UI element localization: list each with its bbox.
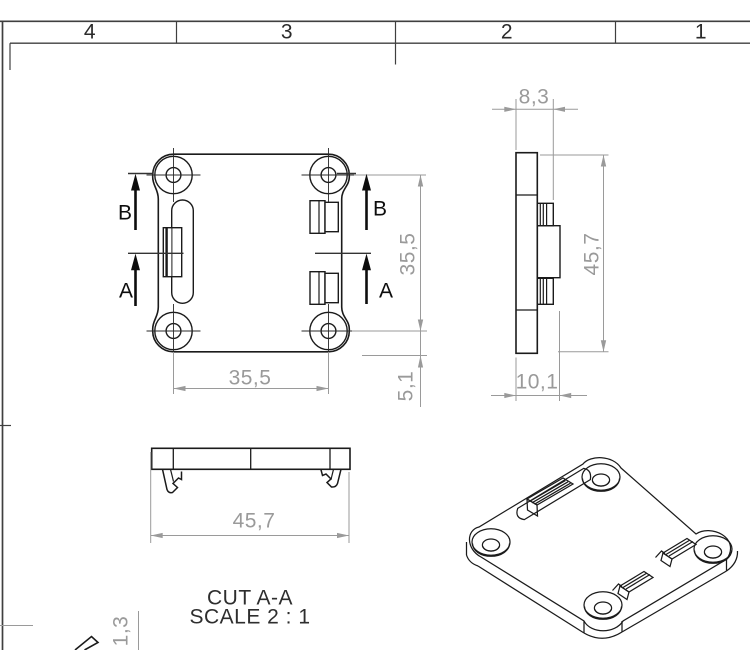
border-frame (0, 21, 750, 650)
section-arrow-a-right (362, 254, 371, 304)
iso-right-clip-lower (613, 572, 654, 600)
dim-side-clip-width: 8,3 (519, 87, 550, 108)
section-label-a-left: A (119, 281, 133, 302)
dim-front-height: 35,5 (398, 233, 419, 276)
dim-side-height: 45,7 (582, 233, 603, 276)
section-label-b-right: B (373, 199, 387, 220)
right-clip-bottom (310, 272, 338, 305)
side-clip-top (537, 203, 553, 225)
zone-label-3: 3 (281, 22, 293, 43)
section-hook-left (163, 469, 182, 492)
side-plate-edge (516, 153, 537, 354)
section-label-b-left: B (118, 203, 132, 224)
zone-label-1: 1 (695, 22, 707, 43)
dim-front-width: 35,5 (229, 368, 272, 389)
right-clip-top (310, 201, 338, 234)
iso-right-clip-upper (656, 539, 697, 567)
zone-label-2: 2 (501, 22, 513, 43)
dim-front-offset: 5,1 (396, 371, 417, 402)
section-label-a-right: A (379, 281, 393, 302)
isometric-view (467, 458, 738, 639)
dim-side-thickness: 10,1 (516, 372, 559, 393)
drawing-canvas (0, 0, 750, 650)
side-boss (537, 226, 560, 278)
iso-top-face (469, 458, 730, 631)
left-clip (163, 228, 181, 277)
dimensions (151, 99, 609, 543)
section-view-scale: SCALE 2 : 1 (189, 607, 310, 628)
dim-cut-width: 45,7 (233, 511, 276, 532)
dim-detail-thickness: 1,3 (111, 616, 132, 647)
section-arrow-b-right (362, 174, 371, 230)
side-clip-bottom (537, 278, 553, 304)
dim-side-clip-lines (492, 99, 578, 200)
section-arrow-b-left (131, 174, 140, 230)
drawing-sheet: 4 3 2 1 B A B A 35,5 35,5 5,1 8,3 45,7 1… (0, 0, 750, 650)
section-view (152, 448, 350, 492)
zone-label-4: 4 (84, 22, 96, 43)
iso-slot (517, 468, 591, 519)
